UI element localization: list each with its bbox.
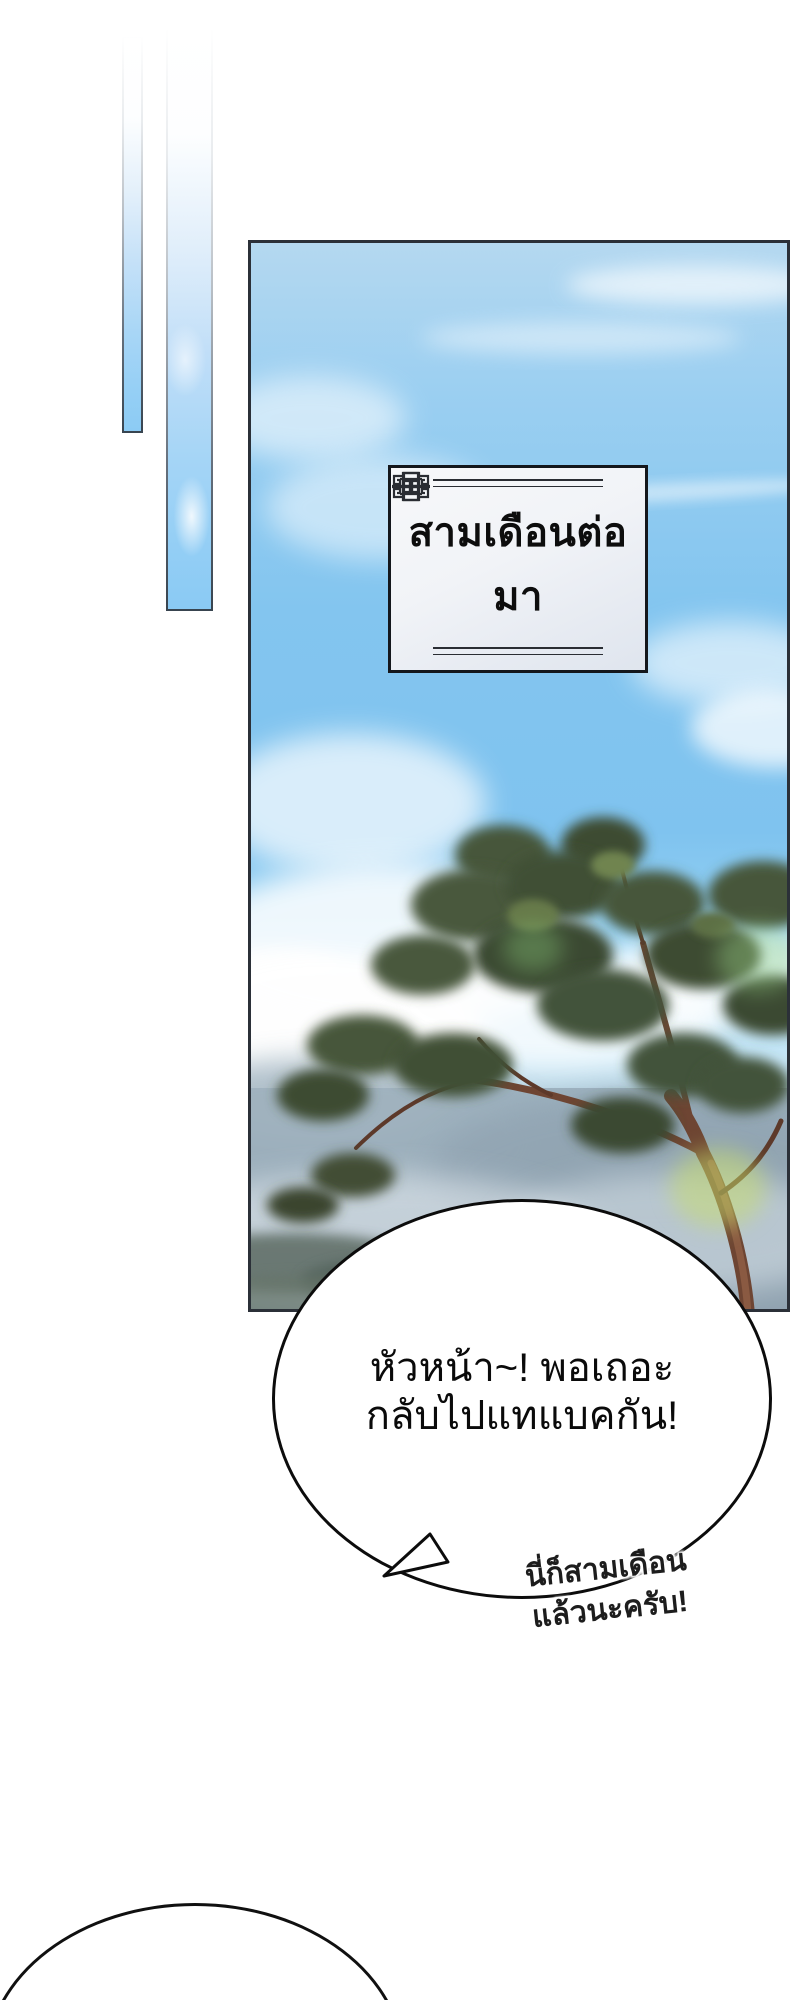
speech-bubble-text: หัวหน้า~! พอเถอะ กลับไปแทแบคกัน!: [366, 1344, 678, 1440]
scene-artwork: [251, 243, 790, 1312]
decor-sky-strip-small-fill: [124, 38, 141, 431]
caption-text: สามเดือนต่อมา: [391, 500, 645, 628]
aside-text: นี่ก็สามเดือน แล้วนะครับ!: [520, 1540, 696, 1638]
speech-bubble: หัวหน้า~! พอเถอะ กลับไปแทแบคกัน!: [272, 1199, 772, 1599]
fret-ornament-icon: [391, 468, 425, 500]
caption-box: สามเดือนต่อมา: [388, 465, 648, 673]
caption-double-rule-bottom: [433, 647, 603, 655]
decor-sky-strip-large-fill: [168, 30, 211, 609]
speech-line: หัวหน้า~! พอเถอะ: [366, 1344, 678, 1392]
scene-panel: สามเดือนต่อมา: [248, 240, 790, 1312]
speech-line: กลับไปแทแบคกัน!: [366, 1392, 678, 1440]
decor-sky-strip-small: [122, 36, 143, 433]
decor-sky-strip-large: [166, 28, 213, 611]
comic-page: สามเดือนต่อมา หัวหน้า~! พอเถอะ กลับไปแทแ…: [0, 0, 800, 2000]
partial-speech-bubble: [0, 1903, 405, 2000]
caption-double-rule-top: [433, 479, 603, 487]
speech-bubble-tail: [374, 1522, 458, 1584]
